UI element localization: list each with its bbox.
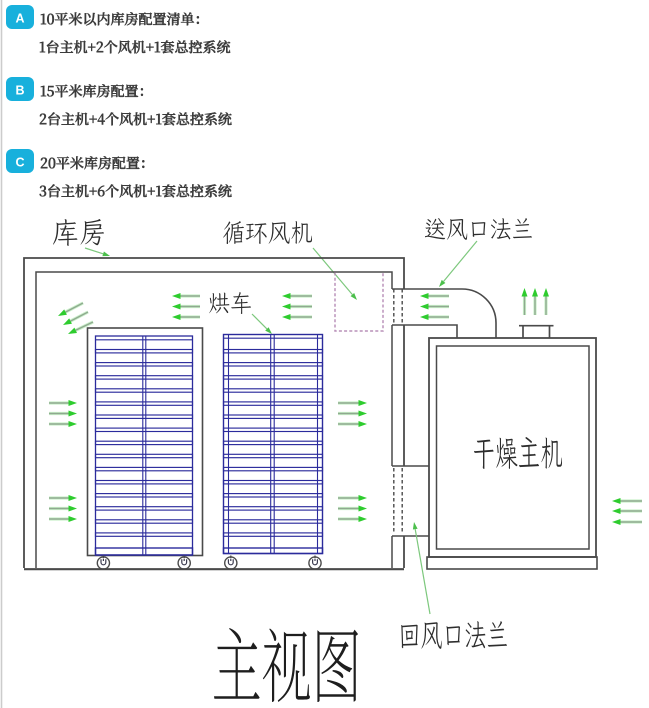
svg-text:C: C [15, 156, 24, 170]
svg-text:A: A [15, 12, 24, 26]
svg-text:B: B [15, 84, 24, 98]
